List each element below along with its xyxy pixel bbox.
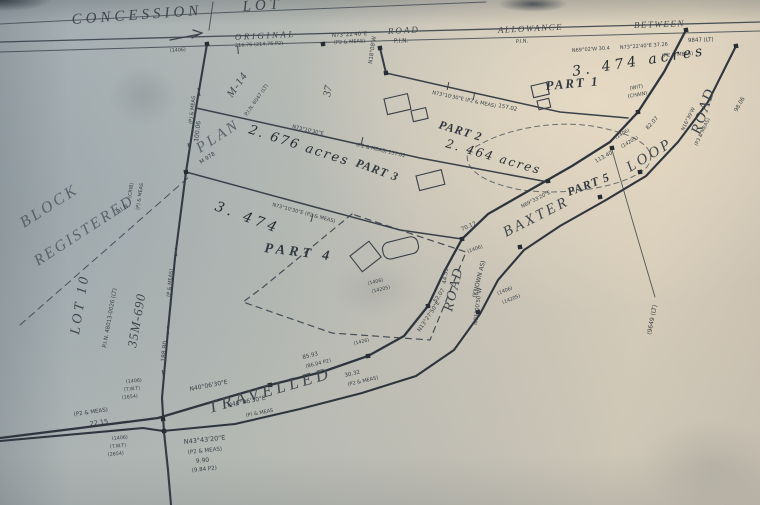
- building-outline: [416, 170, 445, 191]
- label-allowance: ALLOWANCE: [497, 22, 564, 35]
- map-annotation: (1406): [367, 277, 384, 287]
- map-annotation: (1406): [497, 285, 514, 297]
- map-annotation: 85.93: [302, 351, 319, 361]
- map-annotation: 188.80: [160, 340, 169, 362]
- map-annotation: (2654): [108, 451, 125, 458]
- label-pin-road: P.I.N.: [394, 37, 409, 45]
- monument-marker: [377, 45, 382, 50]
- monument-marker: [320, 41, 325, 46]
- map-annotation: (1406): [170, 47, 186, 54]
- survey-plan-photo: CONCESSIONLOTORIGINALROADP.I.N.ALLOWANCE…: [0, 0, 760, 505]
- building-outline: [384, 94, 411, 115]
- lot-line-riser: [380, 48, 386, 73]
- label-original: ORIGINAL: [235, 29, 296, 42]
- map-annotation: (1406): [126, 378, 143, 385]
- map-annotation: N73°10'30"E (P2 & MEAS): [432, 90, 497, 109]
- map-annotation: 98.06: [734, 96, 747, 113]
- label-pin-lot10: P.I.N. 48013-0026 (LT): [102, 288, 118, 348]
- building-outline: [411, 108, 428, 122]
- map-annotation: 113.40: [594, 150, 614, 165]
- label-part-5: PART 5: [565, 170, 612, 199]
- label-concession: CONCESSION: [71, 3, 203, 28]
- map-annotation: (P) & MEAS: [135, 183, 145, 211]
- map-annotation: (1654): [122, 394, 139, 401]
- map-annotation: (P2 & MEAS): [188, 446, 223, 456]
- label-pin-m14: P.I.N. 6047 (LT): [244, 83, 270, 117]
- label-block: BLOCK: [17, 181, 82, 232]
- monument-marker: [183, 169, 188, 174]
- map-annotation: 30.32: [344, 370, 361, 379]
- lot-divider-tick: [209, 2, 213, 30]
- map-annotation: (CHAIN): [627, 91, 648, 100]
- map-annotation: (14205): [371, 284, 391, 294]
- survey-plan-drawing: CONCESSIONLOTORIGINALROADP.I.N.ALLOWANCE…: [0, 0, 760, 505]
- map-annotation: (9.84 P2): [192, 465, 218, 474]
- label-plan-35m690: 35M-690: [124, 292, 148, 349]
- label-road-allowance: ROAD: [387, 24, 420, 36]
- map-annotation: (P2 & MEAS): [334, 38, 366, 46]
- map-annotation: (1406): [467, 244, 484, 255]
- map-annotation: N69°02'W 30.4: [572, 45, 610, 54]
- map-annotation: (9649 (LT): [646, 304, 659, 335]
- building-outline: [381, 235, 420, 260]
- map-annotation: N43°43'20"E: [183, 434, 225, 446]
- map-annotation: 82.07: [645, 115, 660, 131]
- monument-marker: [635, 109, 640, 114]
- road-northwest-edge: [0, 30, 686, 438]
- label-plan-m14: M-14: [224, 70, 250, 100]
- map-annotation: 157.02: [498, 103, 518, 113]
- map-annotation: N73°10'30"E: [292, 124, 325, 137]
- map-annotation: (CRIB): [127, 182, 135, 198]
- map-annotation: N18°08'W: [368, 35, 378, 64]
- map-annotation: (1426): [353, 337, 370, 347]
- tick-mark: [447, 82, 449, 90]
- map-annotation: 9.90: [195, 457, 209, 465]
- monument-marker: [204, 41, 209, 46]
- witness-arrow: [170, 30, 202, 40]
- monument-marker: [545, 178, 550, 183]
- map-annotation: N40°06'30"E: [189, 379, 228, 393]
- monument-marker: [425, 303, 430, 308]
- label-between: BETWEEN: [634, 18, 685, 30]
- label-lot-37: 37: [321, 84, 335, 98]
- label-lot-10: LOT 10: [68, 273, 93, 337]
- map-annotation: (14205): [502, 293, 522, 306]
- monument-marker: [597, 194, 602, 199]
- map-annotation: 22.15: [89, 417, 109, 428]
- label-part-3: PART 3: [354, 156, 401, 184]
- map-annotation: 216.76 (214.76 P2): [235, 40, 284, 49]
- survey-monuments: [160, 27, 738, 433]
- map-annotation: (T.W.T): [110, 443, 127, 450]
- label-part-4: PART 4: [264, 241, 335, 264]
- monument-marker: [365, 353, 370, 358]
- map-annotation: (P2 & MEAS): [73, 407, 108, 418]
- label-pin-allowance: P.I.N.: [516, 38, 529, 45]
- building-outline: [350, 241, 381, 272]
- label-lot: LOT: [241, 0, 283, 15]
- map-annotation: (1406): [112, 435, 129, 442]
- map-annotation: (T.W.T): [124, 386, 141, 393]
- monument-marker: [160, 416, 165, 421]
- monument-marker: [733, 43, 738, 48]
- monument-marker: [161, 428, 166, 433]
- monument-marker: [383, 70, 388, 75]
- monument-marker: [459, 236, 464, 241]
- monument-marker: [517, 244, 522, 249]
